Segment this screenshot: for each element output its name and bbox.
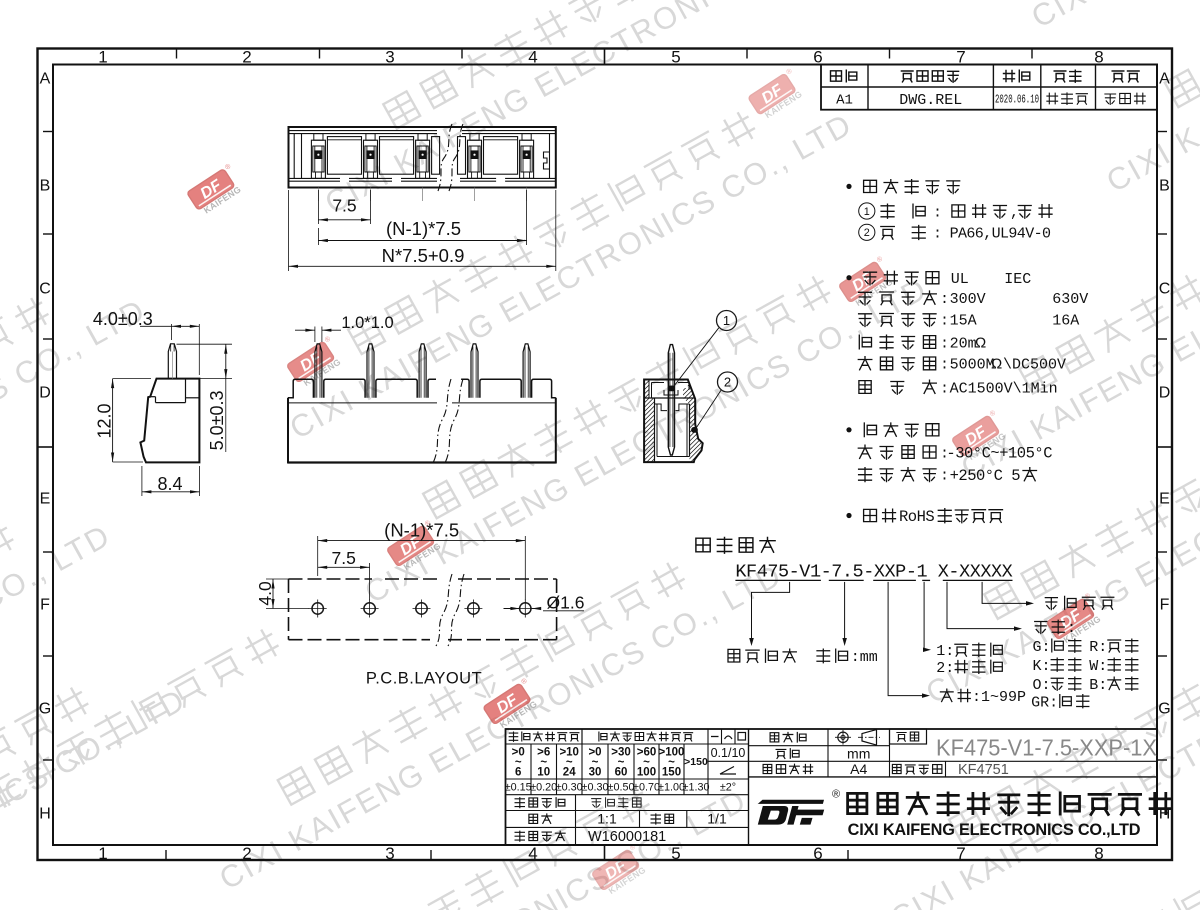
svg-text:3: 3 xyxy=(385,47,394,66)
svg-text::: : xyxy=(940,380,949,397)
svg-text:B: B xyxy=(40,178,51,195)
svg-text:1/1: 1/1 xyxy=(707,811,727,827)
svg-text:G: G xyxy=(39,701,51,718)
svg-text:PA66,UL94V-0: PA66,UL94V-0 xyxy=(950,226,1051,243)
svg-text:1: 1 xyxy=(864,206,870,218)
svg-text:7.5: 7.5 xyxy=(332,195,356,215)
svg-text:2020.06.10: 2020.06.10 xyxy=(995,94,1039,107)
svg-text:Ω: Ω xyxy=(975,334,986,351)
svg-text::: : xyxy=(933,226,942,243)
svg-text::: : xyxy=(940,468,949,485)
svg-text:150: 150 xyxy=(662,767,681,779)
svg-text:,: , xyxy=(1010,204,1019,221)
svg-text::mm: :mm xyxy=(851,649,878,666)
svg-text:±0.50: ±0.50 xyxy=(608,782,635,794)
svg-text:A: A xyxy=(1159,71,1170,88)
svg-text:W:: W: xyxy=(1089,658,1107,675)
svg-text:E: E xyxy=(40,491,51,508)
svg-text::: : xyxy=(940,291,949,308)
svg-text:±1.00: ±1.00 xyxy=(658,782,685,794)
svg-text:630V: 630V xyxy=(1052,291,1088,308)
svg-text:>150: >150 xyxy=(684,756,708,768)
svg-text:C: C xyxy=(39,281,51,298)
svg-text:UL: UL xyxy=(951,271,969,288)
svg-text:5: 5 xyxy=(671,844,680,863)
svg-text:±0.70: ±0.70 xyxy=(633,782,660,794)
svg-text:B: B xyxy=(1159,178,1170,195)
svg-text:2: 2 xyxy=(242,47,251,66)
svg-text:K:: K: xyxy=(1033,658,1051,675)
svg-text:B:: B: xyxy=(1089,677,1107,694)
svg-text:A: A xyxy=(40,71,51,88)
svg-text:H: H xyxy=(39,806,51,823)
svg-text:®: ® xyxy=(832,788,840,800)
svg-text:2: 2 xyxy=(864,227,870,239)
svg-text:mm: mm xyxy=(847,745,870,761)
svg-text:A4: A4 xyxy=(850,761,867,777)
svg-text:8: 8 xyxy=(1094,844,1103,863)
svg-text:Ω: Ω xyxy=(991,356,1002,373)
svg-text:2:: 2: xyxy=(936,660,954,677)
svg-text::: : xyxy=(940,313,949,330)
svg-text:G:: G: xyxy=(1033,639,1051,656)
svg-text:(N-1)*7.5: (N-1)*7.5 xyxy=(386,218,461,239)
svg-text:W16000181: W16000181 xyxy=(588,829,666,845)
svg-text:±0.15: ±0.15 xyxy=(505,782,532,794)
svg-text:N*7.5+0.9: N*7.5+0.9 xyxy=(382,245,465,266)
svg-text::: : xyxy=(940,357,949,374)
svg-text:\DC500V: \DC500V xyxy=(1003,357,1066,374)
svg-text:CIXI KAIFENG ELECTRONICS CO.,L: CIXI KAIFENG ELECTRONICS CO.,LTD xyxy=(848,821,1141,839)
svg-text::: : xyxy=(1067,620,1076,637)
svg-text:5: 5 xyxy=(671,47,680,66)
svg-text:15A: 15A xyxy=(950,313,977,330)
svg-text:1: 1 xyxy=(723,313,730,328)
svg-text:24: 24 xyxy=(563,767,576,779)
svg-text:C: C xyxy=(1159,281,1171,298)
svg-text:1.0*1.0: 1.0*1.0 xyxy=(341,314,393,332)
svg-text:E: E xyxy=(1159,491,1170,508)
svg-text:6: 6 xyxy=(515,767,521,779)
svg-text:GR:: GR: xyxy=(1031,694,1058,711)
svg-text:300V: 300V xyxy=(950,291,986,308)
svg-text:F: F xyxy=(40,597,50,614)
svg-text::: : xyxy=(940,335,949,352)
svg-text:30: 30 xyxy=(589,767,602,779)
svg-text:4.0: 4.0 xyxy=(255,581,275,606)
svg-text:7.5: 7.5 xyxy=(332,548,356,568)
svg-text:±0.30: ±0.30 xyxy=(582,782,609,794)
svg-text:16A: 16A xyxy=(1052,313,1079,330)
svg-text:P.C.B.LAYOUT: P.C.B.LAYOUT xyxy=(366,670,482,688)
svg-text:5000M: 5000M xyxy=(950,357,995,374)
svg-text:2: 2 xyxy=(724,375,731,390)
svg-text::: : xyxy=(933,204,942,221)
svg-text:G: G xyxy=(1158,701,1170,718)
svg-text:±2°: ±2° xyxy=(720,782,736,794)
svg-text:10: 10 xyxy=(537,767,550,779)
svg-text:Ø1.6: Ø1.6 xyxy=(547,592,585,612)
svg-text:+250°C 5: +250°C 5 xyxy=(950,467,1021,485)
svg-text:3: 3 xyxy=(385,844,394,863)
svg-text:A1: A1 xyxy=(836,92,853,108)
svg-text:1: 1 xyxy=(98,844,107,863)
svg-text:20m: 20m xyxy=(950,335,977,352)
svg-text:AC1500V\1Min: AC1500V\1Min xyxy=(950,380,1058,397)
svg-text:100: 100 xyxy=(637,767,656,779)
svg-text:1:: 1: xyxy=(936,643,954,660)
svg-text:KF4751: KF4751 xyxy=(958,762,1009,778)
svg-text::1~99P: :1~99P xyxy=(972,689,1026,706)
svg-text:R:: R: xyxy=(1089,639,1107,656)
svg-text:4: 4 xyxy=(528,47,537,66)
svg-text:KF475-V1-7.5-XXP-1X: KF475-V1-7.5-XXP-1X xyxy=(936,735,1157,761)
svg-text:±0.20: ±0.20 xyxy=(530,782,557,794)
svg-text:8.4: 8.4 xyxy=(157,474,182,494)
svg-text:4: 4 xyxy=(528,844,537,863)
svg-text:12.0: 12.0 xyxy=(94,403,114,438)
svg-text:60: 60 xyxy=(615,767,628,779)
svg-text:DWG.REL: DWG.REL xyxy=(899,92,962,109)
svg-text:1:1: 1:1 xyxy=(597,811,617,827)
svg-text:RoHS: RoHS xyxy=(899,508,934,526)
svg-text:±1.30: ±1.30 xyxy=(683,782,710,794)
svg-text:F: F xyxy=(1160,597,1170,614)
svg-text:2: 2 xyxy=(242,844,251,863)
svg-text:KF475-V1-7.5-XXP-1 X-XXXXX: KF475-V1-7.5-XXP-1 X-XXXXX xyxy=(735,561,1012,582)
svg-text:O:: O: xyxy=(1033,677,1051,694)
svg-text:(N-1)*7.5: (N-1)*7.5 xyxy=(384,519,459,540)
svg-text:5.0±0.3: 5.0±0.3 xyxy=(207,390,227,450)
svg-text:D: D xyxy=(39,385,51,402)
svg-text:7: 7 xyxy=(956,844,965,863)
svg-text:1: 1 xyxy=(98,47,107,66)
svg-text:0.1/10: 0.1/10 xyxy=(711,746,746,760)
svg-text:±0.30: ±0.30 xyxy=(556,782,583,794)
svg-text:6: 6 xyxy=(813,844,822,863)
svg-text:-30°C~+105°C: -30°C~+105°C xyxy=(946,444,1052,462)
svg-text:D: D xyxy=(1159,385,1171,402)
svg-text:IEC: IEC xyxy=(1004,271,1031,288)
